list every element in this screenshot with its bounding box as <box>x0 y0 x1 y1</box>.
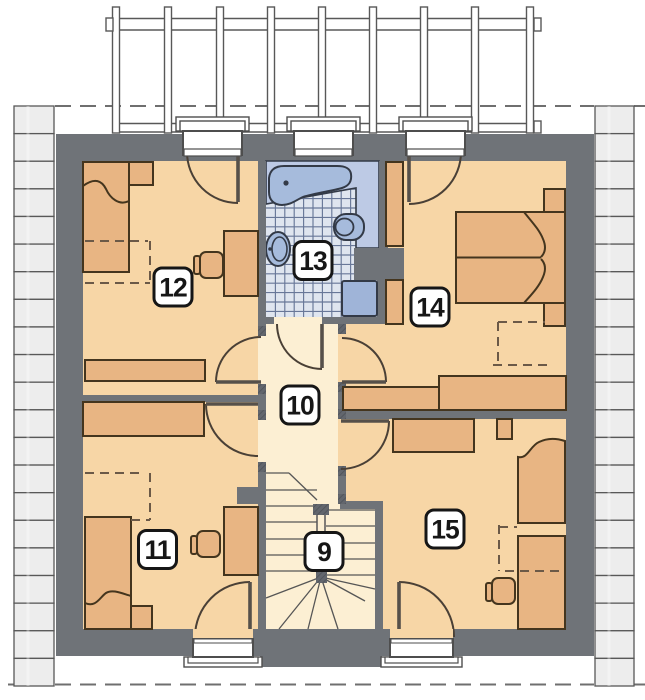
svg-text:11: 11 <box>144 535 170 565</box>
svg-text:9: 9 <box>317 537 331 567</box>
svg-text:15: 15 <box>431 515 459 545</box>
svg-text:13: 13 <box>299 246 327 276</box>
svg-text:12: 12 <box>159 273 187 303</box>
svg-text:14: 14 <box>416 293 445 323</box>
svg-text:10: 10 <box>286 391 314 421</box>
